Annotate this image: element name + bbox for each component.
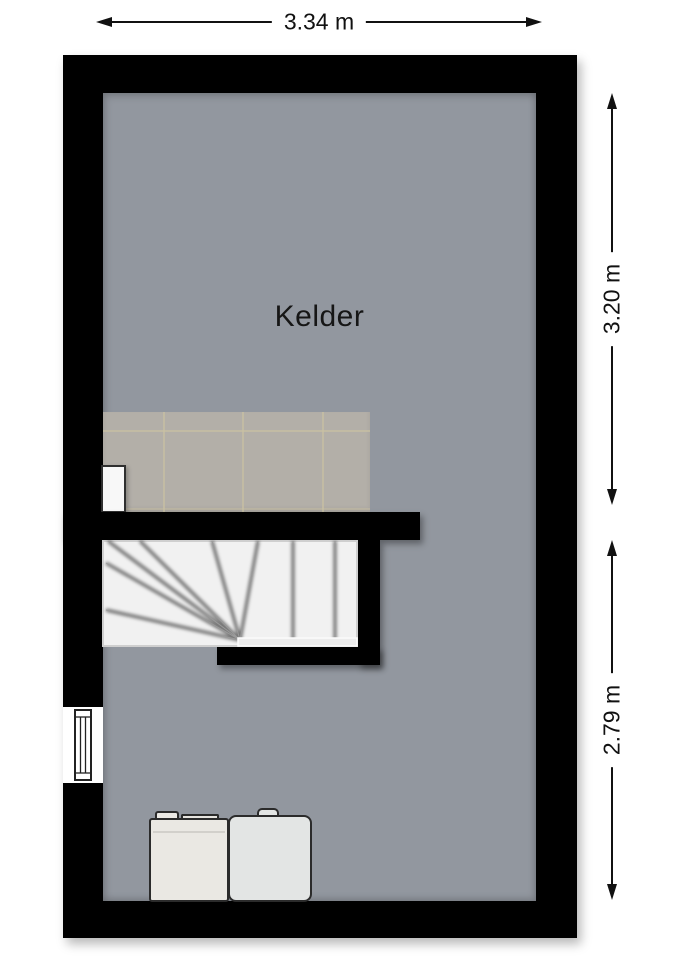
dimension-top-width: 3.34 m — [96, 6, 542, 38]
washer-panel-line — [153, 831, 225, 833]
tile-grid-line — [103, 508, 370, 510]
dimension-label: 3.20 m — [599, 252, 626, 346]
tiled-floor-landing — [103, 412, 370, 512]
dryer — [228, 815, 312, 902]
basement-window — [63, 707, 103, 783]
winder-staircase — [102, 540, 358, 647]
dimension-label: 3.34 m — [272, 9, 366, 36]
arrowhead-right-icon — [526, 17, 542, 27]
dimension-label: 2.79 m — [599, 673, 626, 767]
arrowhead-down-icon — [607, 489, 617, 505]
arrowhead-down-icon — [607, 884, 617, 900]
arrowhead-left-icon — [96, 17, 112, 27]
door-recess — [101, 465, 126, 513]
stair-bottom-step — [238, 638, 357, 646]
washing-machine — [149, 818, 229, 902]
floorplan-canvas: 3.34 m 3.20 m 2.79 m Kelder — [0, 0, 679, 960]
tile-grid-line — [322, 412, 324, 512]
dimension-right-lower: 2.79 m — [596, 540, 628, 900]
interior-wall-top — [63, 512, 420, 540]
window-frame-icon — [63, 707, 103, 783]
interior-wall-stub — [217, 647, 380, 665]
tile-grid-line — [242, 412, 244, 512]
arrowhead-up-icon — [607, 93, 617, 109]
tile-grid-line — [103, 430, 370, 432]
arrowhead-up-icon — [607, 540, 617, 556]
dimension-right-upper: 3.20 m — [596, 93, 628, 505]
tile-grid-line — [163, 412, 165, 512]
room-label: Kelder — [103, 300, 536, 334]
